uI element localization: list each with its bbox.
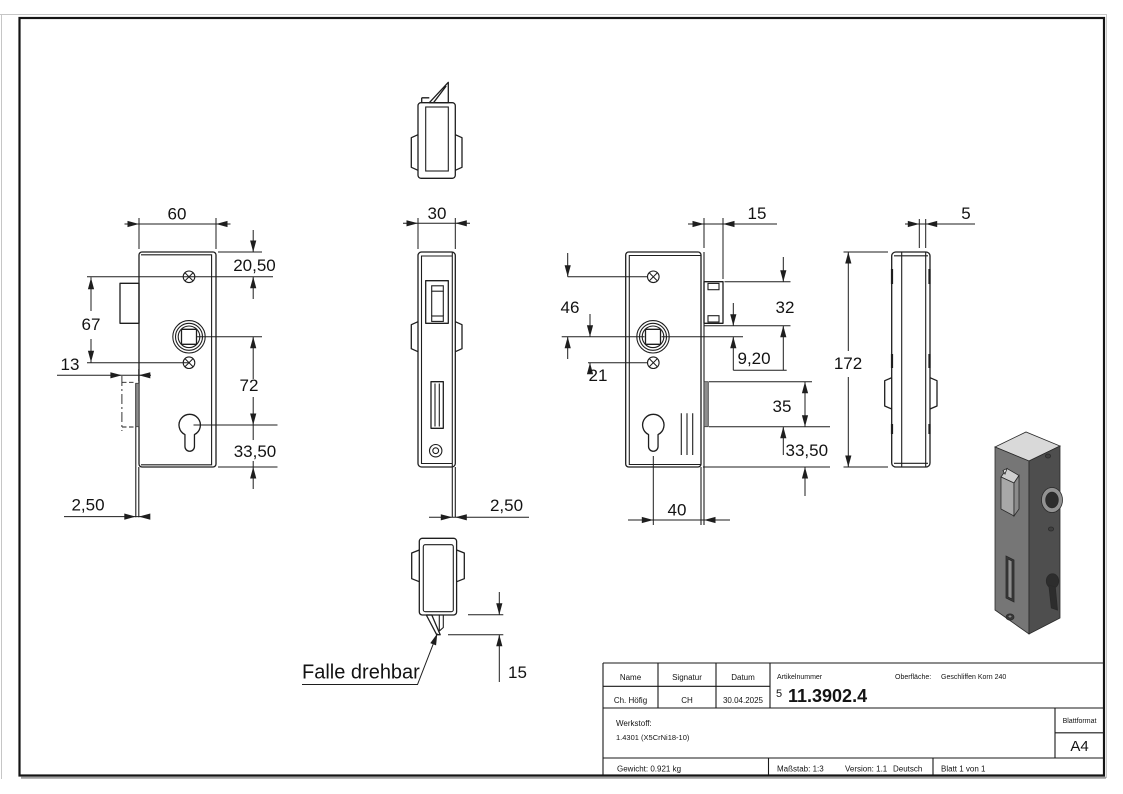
material-label: Werkstoff:	[616, 719, 652, 728]
weight: Gewicht: 0.921 kg	[617, 765, 681, 774]
language: Deutsch	[893, 765, 922, 774]
dim-front-width: 60	[168, 205, 187, 224]
faceplate-screw-hole	[430, 445, 442, 457]
dim-back-35: 35	[773, 397, 792, 416]
dim-side-plate: 2,50	[490, 496, 523, 515]
bolt-opening	[431, 382, 443, 429]
latch-side	[120, 283, 139, 323]
dim-front-plate: 2,50	[71, 496, 104, 515]
value-date: 30.04.2025	[723, 696, 764, 705]
profile-view: 5 172	[834, 204, 975, 467]
article-label: Artikelnummer	[777, 674, 823, 681]
euro-cylinder-hole	[179, 414, 200, 451]
dim-front-top: 20,50	[233, 256, 276, 275]
value-name: Ch. Höfig	[614, 696, 647, 705]
dim-back-40: 40	[668, 501, 687, 520]
latch-note-text: Falle drehbar	[302, 662, 420, 684]
dim-front-screws: 67	[82, 315, 101, 334]
dim-back-920: 9,20	[738, 349, 771, 368]
screw-hole-top-back	[648, 271, 660, 283]
technical-drawing: 60 20,50 67 13 72 33,50 2,50	[0, 0, 1123, 794]
profile-view-dimensions: 5 172	[834, 204, 975, 467]
header-name: Name	[620, 673, 642, 682]
latch-note: Falle drehbar	[302, 632, 440, 684]
bottom-view: 15 Falle drehbar	[302, 538, 527, 684]
dim-back-latch-depth: 15	[748, 204, 767, 223]
hatch-marks	[681, 413, 692, 455]
dim-back-3350: 33,50	[786, 441, 829, 460]
dim-latch-protrusion: 15	[508, 663, 527, 682]
dim-back-46: 46	[561, 298, 580, 317]
article-prefix: 5	[776, 688, 782, 700]
iso-view	[995, 432, 1063, 634]
dim-back-32: 32	[776, 298, 795, 317]
dim-back-21: 21	[589, 366, 608, 385]
side-view: 30 2,50	[403, 204, 529, 520]
euro-cylinder-hole-back	[643, 414, 664, 451]
screw-hole-bottom-back	[648, 357, 660, 369]
front-view: 60 20,50 67 13 72 33,50 2,50	[57, 205, 278, 520]
latch-tip-top	[422, 82, 449, 102]
dim-front-latch: 13	[61, 355, 80, 374]
dim-profile-thickness: 5	[961, 204, 970, 223]
sheet-frame	[0, 15, 1107, 780]
bottom-view-dimensions: 15	[448, 592, 527, 682]
material-value: 1.4301 (X5CrNi18-10)	[616, 733, 690, 742]
scale: Maßstab: 1:3	[777, 765, 824, 774]
dim-front-span: 72	[240, 376, 259, 395]
header-signature: Signatur	[672, 673, 702, 682]
bolt-edge-back	[704, 382, 708, 427]
drawing-sheet: 60 20,50 67 13 72 33,50 2,50	[0, 0, 1123, 794]
format-value: A4	[1070, 738, 1088, 755]
dim-front-bottom: 33,50	[234, 442, 277, 461]
top-view	[411, 82, 462, 178]
latch-opening	[426, 281, 449, 324]
dim-profile-height: 172	[834, 354, 862, 373]
surface-value: Geschliffen Korn 240	[941, 674, 1006, 681]
dim-side-width: 30	[428, 204, 447, 223]
iso-latch	[1001, 469, 1019, 517]
back-view: 15 46 21 32 9,20 35 33,50	[561, 204, 830, 525]
header-date: Datum	[731, 673, 755, 682]
latch-tip-bottom	[426, 615, 443, 635]
title-block: Name Signatur Datum Ch. Höfig CH 30.04.2…	[603, 663, 1104, 775]
latch-back	[704, 282, 723, 324]
bolt-edge	[136, 383, 139, 426]
value-signature: CH	[681, 696, 693, 705]
version: Version: 1.1	[845, 765, 888, 774]
format-label: Blattformat	[1063, 718, 1097, 725]
article-number: 11.3902.4	[788, 686, 867, 706]
surface-label: Oberfläche:	[895, 674, 931, 681]
sheet: Blatt 1 von 1	[941, 765, 986, 774]
